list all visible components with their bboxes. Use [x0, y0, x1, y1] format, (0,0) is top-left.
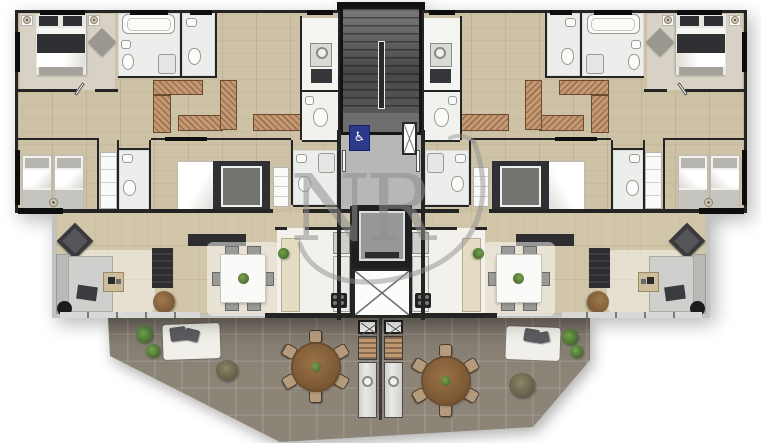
shower [158, 54, 176, 74]
wall [475, 227, 487, 230]
toilet-icon [434, 108, 449, 127]
sofa-cushion [664, 285, 686, 302]
lamp-icon [49, 198, 58, 207]
bathtub [587, 14, 640, 34]
tray [116, 279, 121, 284]
bed-dark-frame [492, 161, 549, 213]
round-side-table [587, 291, 609, 313]
tray [641, 279, 646, 284]
sink-icon [629, 154, 640, 163]
glass-door [60, 312, 200, 318]
closet-cabinet [253, 114, 301, 131]
armchair-cushion [62, 228, 87, 253]
round-side-table [153, 291, 175, 313]
wall [118, 76, 217, 78]
plant [473, 248, 484, 259]
bed-dark-frame [213, 161, 270, 213]
laundry-wc [302, 92, 338, 140]
washer-drum-icon [434, 47, 446, 59]
single-bed [711, 156, 739, 210]
lamp-icon [664, 16, 672, 24]
bed-pillow [681, 158, 705, 168]
closet-cabinet [525, 80, 542, 130]
bed-duvet [677, 53, 725, 67]
wall [613, 148, 643, 150]
bathtub-inner [591, 18, 635, 31]
wall [215, 13, 217, 76]
wall [685, 89, 747, 92]
bed-blanket [55, 190, 83, 210]
lamp-icon [704, 198, 713, 207]
wall [119, 148, 149, 150]
shower [318, 153, 335, 173]
dining-chair [540, 272, 550, 286]
laundry-room [424, 18, 460, 90]
wall [303, 209, 352, 213]
wall [663, 138, 665, 212]
wall [410, 209, 459, 213]
single-bed [23, 156, 51, 210]
bed-duvet [711, 170, 739, 188]
wall [469, 140, 471, 205]
toilet-icon [451, 176, 464, 192]
closet-cabinet [220, 80, 237, 130]
wall [643, 140, 645, 212]
bed-duvet [37, 53, 85, 67]
lamp-icon [90, 16, 98, 24]
floor-plan-render: ♿ NR [0, 0, 761, 443]
elevator [352, 205, 412, 268]
bed-blanket [711, 190, 739, 210]
wall [664, 138, 744, 140]
wall [580, 13, 582, 76]
bed-pillow [679, 15, 700, 27]
sink-icon [565, 18, 576, 27]
fridge [333, 232, 350, 254]
toilet-icon [561, 48, 574, 65]
building: ♿ [0, 0, 761, 443]
coffee-table [103, 272, 124, 292]
single-bed [679, 156, 707, 210]
window [429, 10, 455, 15]
closet-cabinet [153, 80, 203, 95]
shaft-panel [402, 122, 417, 155]
bed-duvet [55, 170, 83, 188]
accessibility-sign: ♿ [350, 126, 369, 150]
bed-blanket [23, 190, 51, 210]
sink-icon [305, 96, 314, 105]
bed-blanket [500, 166, 541, 207]
washer-drum-icon [316, 47, 328, 59]
window [15, 150, 20, 205]
elevator-car [359, 211, 405, 261]
bed-bench [679, 67, 723, 75]
coffee-table [638, 272, 659, 292]
dining-chair [264, 272, 274, 286]
toilet-icon [298, 176, 311, 192]
table-centerpiece [238, 273, 249, 284]
window [699, 208, 744, 214]
toilet-icon [313, 108, 328, 127]
window [130, 10, 168, 15]
toilet-icon [123, 180, 136, 196]
stairwell [340, 6, 422, 135]
window [15, 32, 20, 72]
laundry-wc [424, 92, 460, 140]
armchair-cushion [674, 228, 699, 253]
wall [97, 138, 99, 212]
window [742, 150, 747, 205]
wall [275, 227, 287, 230]
sink-icon [121, 40, 131, 49]
shower [427, 153, 444, 173]
window [555, 137, 597, 141]
window [165, 137, 207, 141]
window [190, 10, 212, 15]
bed-blanket [679, 190, 707, 210]
wardrobe [473, 167, 489, 207]
lamp-icon [731, 16, 739, 24]
wall [410, 227, 457, 230]
bathtub [122, 14, 175, 34]
shower [586, 54, 604, 74]
wall [305, 227, 352, 230]
laundry-counter [430, 69, 451, 83]
bed-pillow [25, 158, 49, 168]
stair-railing [378, 41, 385, 109]
dining-chair [247, 301, 261, 311]
closet-cabinet [153, 95, 171, 133]
tv-rack [152, 248, 173, 288]
window [18, 208, 63, 214]
sofa-cushion [76, 285, 98, 302]
closet-cabinet [591, 95, 609, 133]
bed-blanket [221, 166, 262, 207]
bed-duvet [178, 162, 213, 211]
wardrobe [645, 152, 662, 209]
dining-chair [523, 301, 537, 311]
closet-cabinet [559, 80, 609, 95]
dining-chair [225, 301, 239, 311]
lamp-icon [23, 16, 31, 24]
bed-duvet [679, 170, 707, 188]
bed-duvet [549, 162, 584, 211]
bed-blanket [37, 34, 85, 53]
bathtub-inner [127, 18, 171, 31]
glass-door [562, 312, 702, 318]
washing-machine [310, 43, 332, 67]
single-bed [55, 156, 83, 210]
toilet-icon [188, 48, 201, 65]
closet-cabinet [461, 114, 509, 131]
wall [545, 76, 644, 78]
tray [647, 277, 654, 284]
burner [425, 295, 429, 299]
closet-cabinet [178, 115, 223, 131]
toilet-icon [122, 54, 134, 70]
wardrobe [100, 152, 117, 209]
wall [293, 205, 339, 207]
tray [108, 277, 115, 284]
sink-icon [455, 154, 466, 163]
bed-pillow [57, 158, 81, 168]
wardrobe [273, 167, 289, 207]
elevator-shaft-x [352, 268, 412, 318]
bed-duvet [23, 170, 51, 188]
wall [95, 89, 118, 92]
sink-icon [631, 40, 641, 49]
washing-machine [430, 43, 452, 67]
wall [149, 140, 151, 212]
bed-pillow [38, 15, 59, 27]
table-centerpiece [513, 273, 524, 284]
toilet-icon [628, 54, 640, 70]
bed-pillow [713, 158, 737, 168]
window [307, 10, 333, 15]
bed-bench [39, 67, 83, 75]
core-wall [421, 130, 425, 320]
laundry-counter [311, 69, 332, 83]
toilet-icon [626, 180, 639, 196]
wall [18, 138, 98, 140]
burner [425, 301, 429, 305]
wall [15, 89, 77, 92]
window [594, 10, 632, 15]
tv-rack [589, 248, 610, 288]
wall [644, 89, 667, 92]
sink-icon [296, 154, 307, 163]
window [677, 10, 722, 15]
bed-pillow [703, 15, 724, 27]
apartment-unit-left [15, 10, 381, 320]
wall [611, 140, 613, 212]
sink-icon [186, 18, 197, 27]
elevator-door [365, 252, 399, 258]
wall [424, 140, 460, 142]
core-wall [337, 130, 341, 320]
sink-icon [448, 96, 457, 105]
bed-pillow [62, 15, 83, 27]
bed-blanket [677, 34, 725, 53]
wall [460, 16, 462, 140]
wall [423, 205, 469, 207]
wall [302, 140, 338, 142]
closet-cabinet [539, 115, 584, 131]
window [550, 10, 572, 15]
door-leaf [342, 150, 346, 172]
wall [545, 13, 547, 76]
apartment-unit-right [381, 10, 747, 320]
plant [278, 248, 289, 259]
dining-chair [501, 301, 515, 311]
window [742, 32, 747, 72]
sink-icon [122, 154, 133, 163]
laundry-room [302, 18, 338, 90]
window [40, 10, 85, 15]
